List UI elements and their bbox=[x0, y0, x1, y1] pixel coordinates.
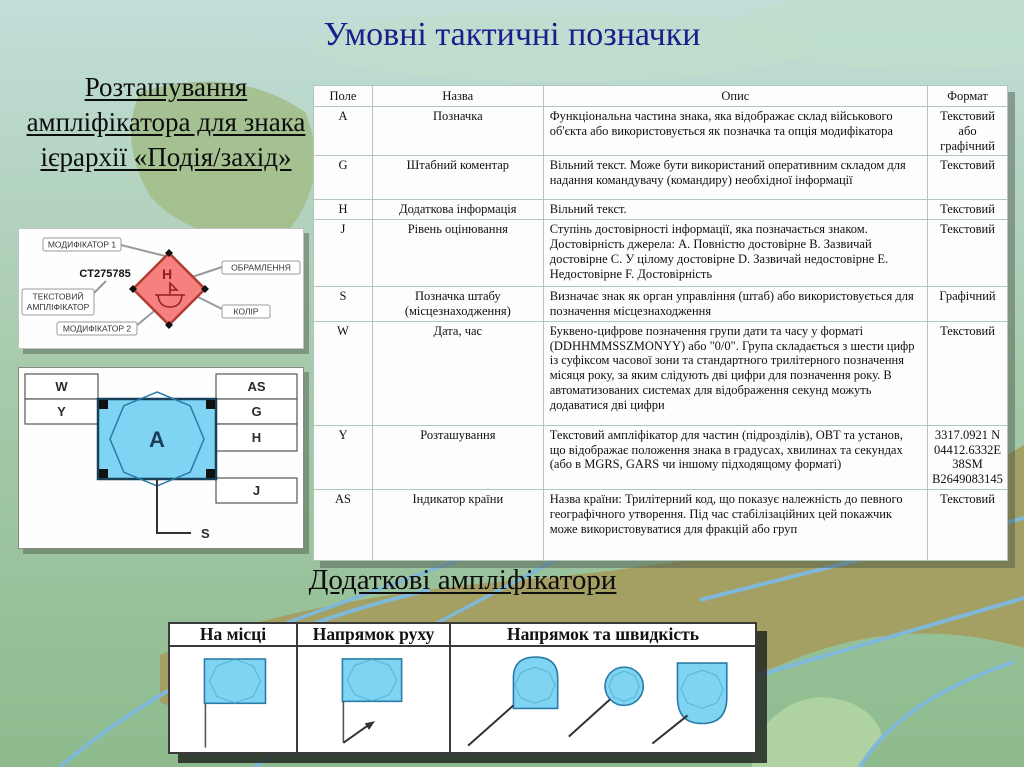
label-connector-line bbox=[192, 267, 222, 277]
cell-format: Графічний bbox=[927, 287, 1007, 322]
cell-field: A bbox=[314, 107, 373, 156]
cell-field: H bbox=[314, 200, 373, 220]
cell-name: Розташування bbox=[372, 425, 543, 489]
left-heading: Розташування ампліфікатора для знака ієр… bbox=[20, 70, 312, 175]
in-place-flag-symbol bbox=[170, 647, 296, 756]
slide-title: Умовні тактичні позначки bbox=[0, 16, 1024, 54]
corner-anchor-icon bbox=[206, 469, 215, 478]
cell-name: Індикатор країни bbox=[372, 489, 543, 560]
amplifier-placement-diagram: H МОДИФІКАТОР 1 CT275785 ТЕКСТОВИЙ АМПЛІ… bbox=[18, 228, 304, 349]
header-desc: Опис bbox=[543, 86, 927, 107]
table-row: S Позначка штабу (місцезнаходження) Визн… bbox=[314, 287, 1008, 322]
arrowhead-icon bbox=[365, 721, 375, 730]
modifier1-label: МОДИФІКАТОР 1 bbox=[48, 240, 117, 250]
cell-field: J bbox=[314, 220, 373, 287]
additional-amplifiers-table: На місці Напрямок руху Напрямок та швидк… bbox=[168, 622, 757, 754]
u-shape-symbol bbox=[677, 663, 726, 723]
cell-field: AS bbox=[314, 489, 373, 560]
header-in-place: На місці bbox=[170, 624, 298, 645]
cell-desc: Ступінь достовірності інформації, яка по… bbox=[543, 220, 927, 287]
field-letter-s: S bbox=[201, 526, 210, 541]
staff-connector-line bbox=[157, 479, 191, 533]
amplifier-placement-svg: H МОДИФІКАТОР 1 CT275785 ТЕКСТОВИЙ АМПЛІ… bbox=[19, 229, 303, 348]
direction-symbol-cell bbox=[298, 647, 451, 756]
corner-anchor-icon bbox=[99, 469, 108, 478]
field-letter-j: J bbox=[253, 483, 260, 498]
symbol-frame bbox=[342, 659, 401, 701]
circle-symbol bbox=[605, 667, 643, 705]
cell-format: Текстовий bbox=[927, 200, 1007, 220]
symbols-table-header: На місці Напрямок руху Напрямок та швидк… bbox=[170, 624, 755, 647]
table-row: G Штабний коментар Вільний текст. Може б… bbox=[314, 156, 1008, 200]
amplifier-layout-diagram: A S W Y AS G H J bbox=[18, 367, 304, 549]
speed-vector-line bbox=[652, 715, 687, 743]
cell-format: Текстовий bbox=[927, 220, 1007, 287]
cell-desc: Вільний текст. Може бути використаний оп… bbox=[543, 156, 927, 200]
text-amplifier-label: АМПЛІФІКАТОР bbox=[27, 302, 90, 312]
header-name: Назва bbox=[372, 86, 543, 107]
in-place-symbol-cell bbox=[170, 647, 298, 756]
cell-desc: Текстовий ампліфікатор для частин (підро… bbox=[543, 425, 927, 489]
cell-desc: Буквено-цифрове позначення групи дати та… bbox=[543, 321, 927, 425]
cell-desc: Назва країни: Трилітерний код, що показу… bbox=[543, 489, 927, 560]
modifier2-label: МОДИФІКАТОР 2 bbox=[63, 324, 132, 334]
cell-format: 3317.0921 N 04412.6332E 38SM B2649083145 bbox=[927, 425, 1007, 489]
cell-field: Y bbox=[314, 425, 373, 489]
cell-format: Текстовий bbox=[927, 321, 1007, 425]
cell-desc: Вільний текст. bbox=[543, 200, 927, 220]
direction-arrow bbox=[343, 726, 367, 743]
amplifier-fields-table: Поле Назва Опис Формат A Позначка Функці… bbox=[313, 85, 1008, 561]
label-connector-line bbox=[121, 245, 169, 257]
amplifier-layout-svg: A S W Y AS G H J bbox=[19, 368, 303, 548]
cell-name: Штабний коментар bbox=[372, 156, 543, 200]
symbol-frame bbox=[204, 659, 265, 703]
diamond-letter: H bbox=[162, 266, 172, 282]
additional-amplifiers-heading: Додаткові ампліфікатори bbox=[168, 564, 757, 597]
field-letter-g: G bbox=[251, 404, 261, 419]
speed-vector-line bbox=[468, 705, 513, 745]
symbols-table-body bbox=[170, 647, 755, 756]
corner-anchor-icon bbox=[99, 400, 108, 409]
field-letter-y: Y bbox=[57, 404, 66, 419]
header-format: Формат bbox=[927, 86, 1007, 107]
cell-desc: Функціональна частина знака, яка відобра… bbox=[543, 107, 927, 156]
direction-and-speed-symbols bbox=[451, 647, 755, 756]
cell-format: Текстовий або графічний bbox=[927, 107, 1007, 156]
speed-vector-line bbox=[569, 699, 610, 736]
header-field: Поле bbox=[314, 86, 373, 107]
event-diamond-symbol bbox=[133, 253, 205, 325]
table-row: J Рівень оцінювання Ступінь достовірност… bbox=[314, 220, 1008, 287]
header-direction: Напрямок руху bbox=[298, 624, 451, 645]
table-row: H Додаткова інформація Вільний текст. Те… bbox=[314, 200, 1008, 220]
corner-anchor-icon bbox=[206, 400, 215, 409]
field-letter-as: AS bbox=[247, 379, 265, 394]
dome-symbol bbox=[513, 657, 557, 708]
color-label: КОЛІР bbox=[234, 307, 259, 317]
cell-desc: Визначає знак як орган управління (штаб)… bbox=[543, 287, 927, 322]
text-amplifier-example: CT275785 bbox=[79, 268, 130, 280]
cell-name: Позначка bbox=[372, 107, 543, 156]
direction-speed-symbol-cell bbox=[451, 647, 755, 756]
field-letter-h: H bbox=[252, 430, 261, 445]
table-row: W Дата, час Буквено-цифрове позначення г… bbox=[314, 321, 1008, 425]
cell-name: Позначка штабу (місцезнаходження) bbox=[372, 287, 543, 322]
cell-name: Дата, час bbox=[372, 321, 543, 425]
cell-field: S bbox=[314, 287, 373, 322]
direction-of-movement-symbol bbox=[298, 647, 449, 756]
text-amplifier-label: ТЕКСТОВИЙ bbox=[33, 291, 84, 302]
table-header-row: Поле Назва Опис Формат bbox=[314, 86, 1008, 107]
cell-name: Додаткова інформація bbox=[372, 200, 543, 220]
header-direction-speed: Напрямок та швидкість bbox=[451, 624, 755, 645]
field-letter-a: A bbox=[149, 427, 165, 452]
table-row: Y Розташування Текстовий ампліфікатор дл… bbox=[314, 425, 1008, 489]
cell-field: G bbox=[314, 156, 373, 200]
field-letter-w: W bbox=[55, 379, 68, 394]
cell-name: Рівень оцінювання bbox=[372, 220, 543, 287]
frame-label: ОБРАМЛЕННЯ bbox=[231, 263, 291, 273]
table-row: AS Індикатор країни Назва країни: Триліт… bbox=[314, 489, 1008, 560]
cell-format: Текстовий bbox=[927, 156, 1007, 200]
cell-field: W bbox=[314, 321, 373, 425]
table-row: A Позначка Функціональна частина знака, … bbox=[314, 107, 1008, 156]
cell-format: Текстовий bbox=[927, 489, 1007, 560]
label-connector-line bbox=[94, 281, 106, 293]
